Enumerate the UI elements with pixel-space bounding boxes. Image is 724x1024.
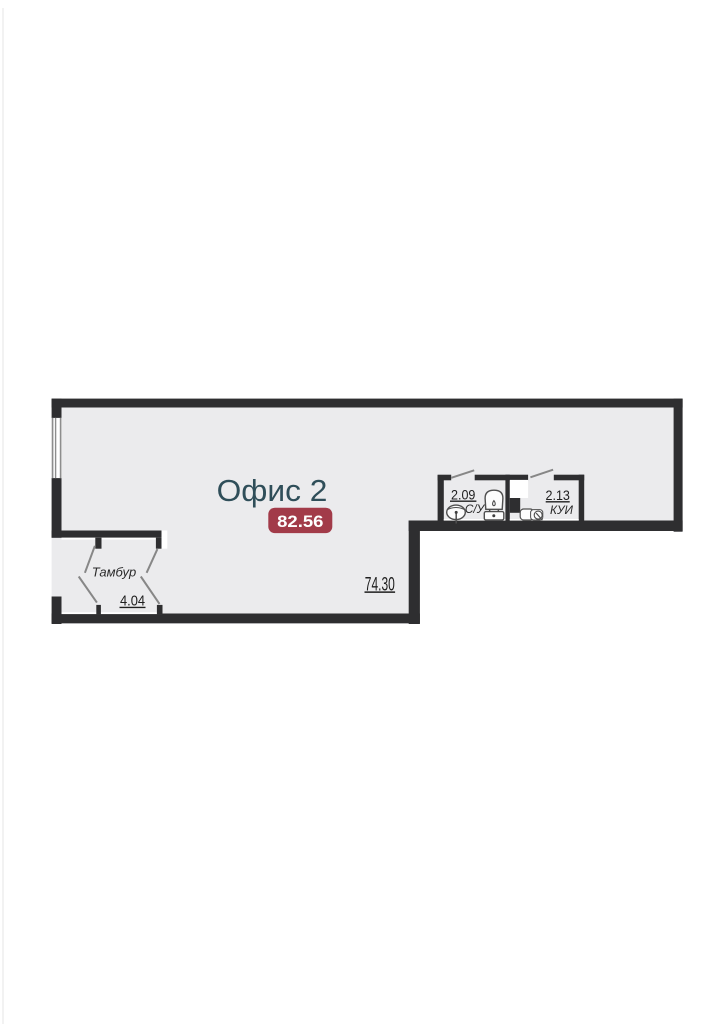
- svg-text:С/У: С/У: [465, 502, 486, 516]
- svg-text:2.13: 2.13: [545, 488, 569, 504]
- svg-text:82.56: 82.56: [277, 512, 323, 531]
- svg-text:Офис 2: Офис 2: [217, 474, 328, 508]
- svg-text:2.09: 2.09: [451, 487, 475, 503]
- svg-text:Тамбур: Тамбур: [92, 565, 137, 580]
- svg-text:4.04: 4.04: [120, 593, 145, 609]
- svg-text:КУИ: КУИ: [550, 503, 573, 517]
